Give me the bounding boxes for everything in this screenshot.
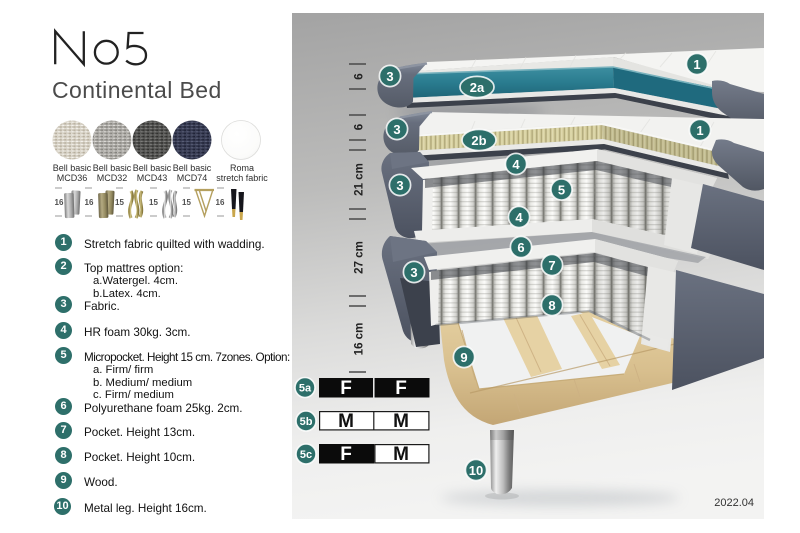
- svg-text:5: 5: [558, 182, 565, 197]
- svg-text:3: 3: [386, 69, 393, 84]
- svg-text:7: 7: [548, 258, 555, 273]
- svg-text:10: 10: [469, 463, 483, 478]
- svg-text:F: F: [340, 378, 352, 399]
- svg-text:21 cm: 21 cm: [354, 163, 366, 196]
- svg-text:1: 1: [693, 57, 700, 72]
- svg-text:15: 15: [149, 198, 158, 207]
- svg-text:15: 15: [115, 198, 124, 207]
- svg-text:4: 4: [515, 210, 523, 225]
- svg-text:8: 8: [548, 298, 555, 313]
- svg-text:5c: 5c: [300, 449, 312, 461]
- svg-text:16: 16: [55, 198, 64, 207]
- svg-text:5a: 5a: [299, 383, 312, 395]
- svg-text:4: 4: [512, 157, 520, 172]
- svg-text:16: 16: [216, 198, 225, 207]
- svg-text:M: M: [393, 411, 409, 432]
- svg-text:3: 3: [396, 178, 403, 193]
- svg-text:9: 9: [460, 350, 467, 365]
- svg-text:6: 6: [517, 240, 524, 255]
- svg-text:6: 6: [354, 124, 366, 130]
- svg-text:2022.04: 2022.04: [714, 497, 754, 509]
- svg-text:6: 6: [354, 73, 366, 79]
- svg-text:M: M: [338, 411, 354, 432]
- svg-text:5b: 5b: [300, 416, 313, 428]
- svg-text:M: M: [393, 444, 409, 465]
- svg-text:16: 16: [85, 198, 94, 207]
- svg-text:1: 1: [696, 123, 703, 138]
- svg-text:15: 15: [182, 198, 191, 207]
- svg-text:27 cm: 27 cm: [354, 241, 366, 274]
- svg-text:3: 3: [410, 265, 417, 280]
- svg-text:F: F: [340, 444, 352, 465]
- svg-text:F: F: [395, 378, 407, 399]
- svg-text:2b: 2b: [471, 133, 486, 148]
- svg-text:2a: 2a: [470, 80, 485, 95]
- svg-text:16 cm: 16 cm: [354, 323, 366, 356]
- svg-text:3: 3: [393, 122, 400, 137]
